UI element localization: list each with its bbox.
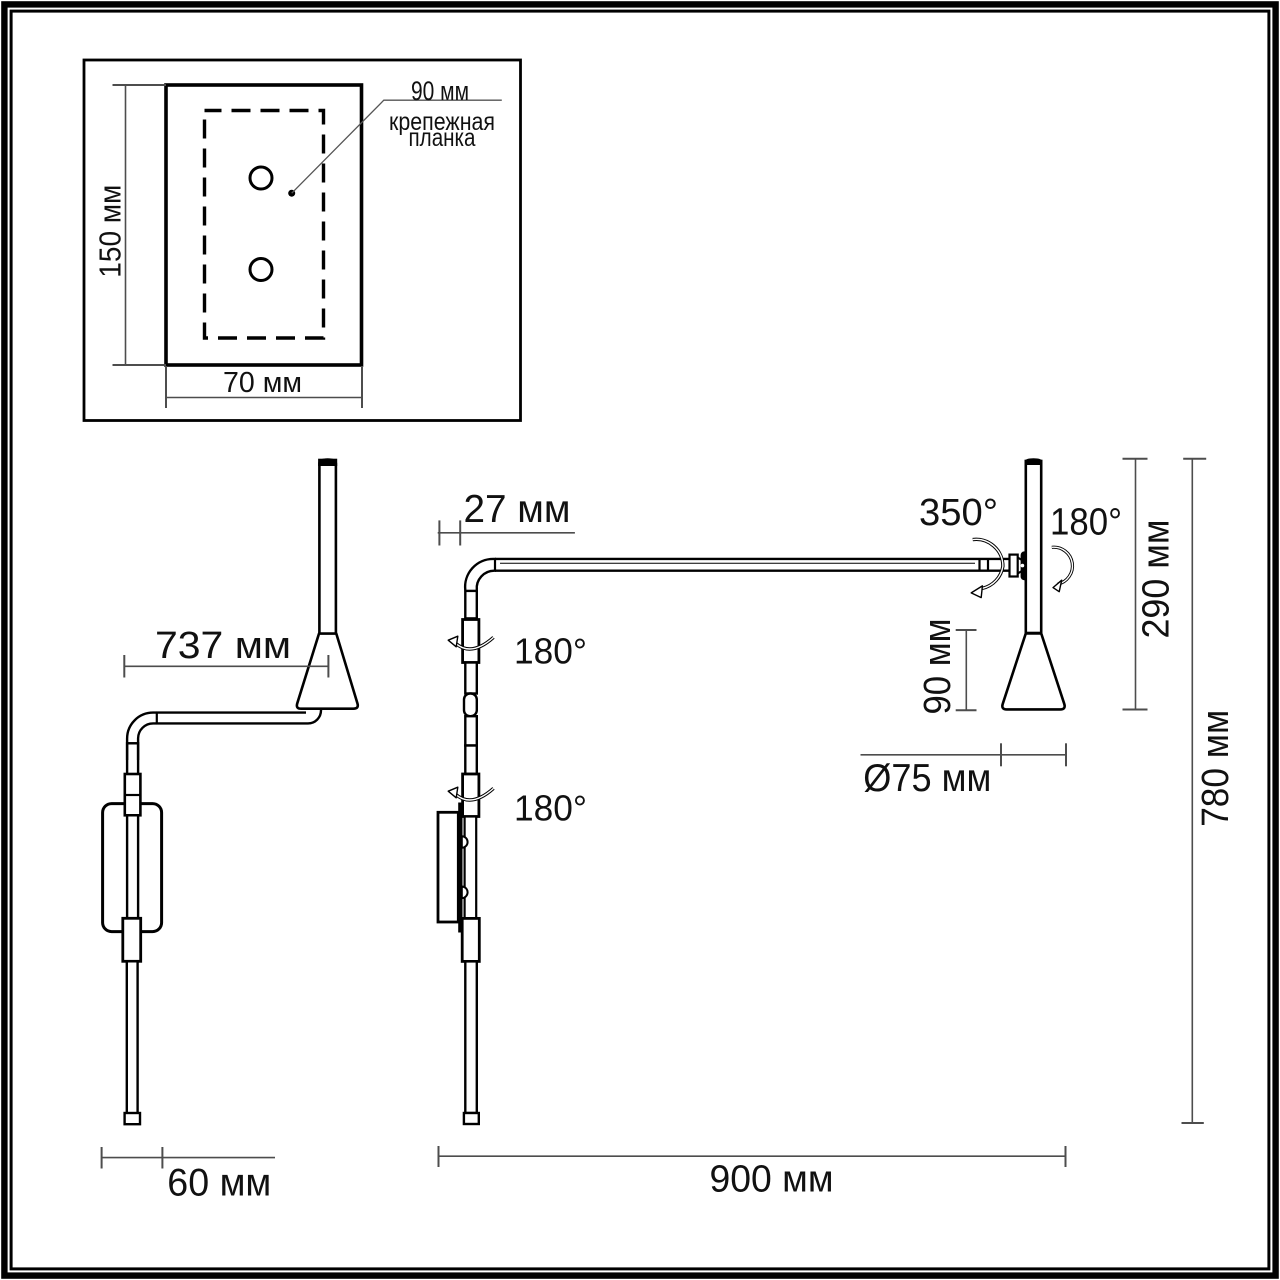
svg-text:290 мм: 290 мм <box>1135 520 1177 639</box>
svg-text:90 мм: 90 мм <box>917 619 959 715</box>
svg-text:планка: планка <box>409 124 476 152</box>
svg-text:737 мм: 737 мм <box>155 625 291 667</box>
svg-text:180°: 180° <box>1050 502 1122 544</box>
svg-text:900 мм: 900 мм <box>710 1158 834 1200</box>
svg-text:27 мм: 27 мм <box>464 488 571 531</box>
svg-text:780 мм: 780 мм <box>1195 710 1237 827</box>
svg-text:70 мм: 70 мм <box>223 367 302 399</box>
svg-text:90 мм: 90 мм <box>411 76 469 106</box>
svg-text:60 мм: 60 мм <box>167 1162 271 1205</box>
svg-text:150 мм: 150 мм <box>93 185 128 278</box>
svg-text:180°: 180° <box>514 631 587 672</box>
svg-text:350°: 350° <box>919 492 998 534</box>
svg-text:180°: 180° <box>514 787 587 828</box>
svg-text:Ø75 мм: Ø75 мм <box>863 757 991 800</box>
